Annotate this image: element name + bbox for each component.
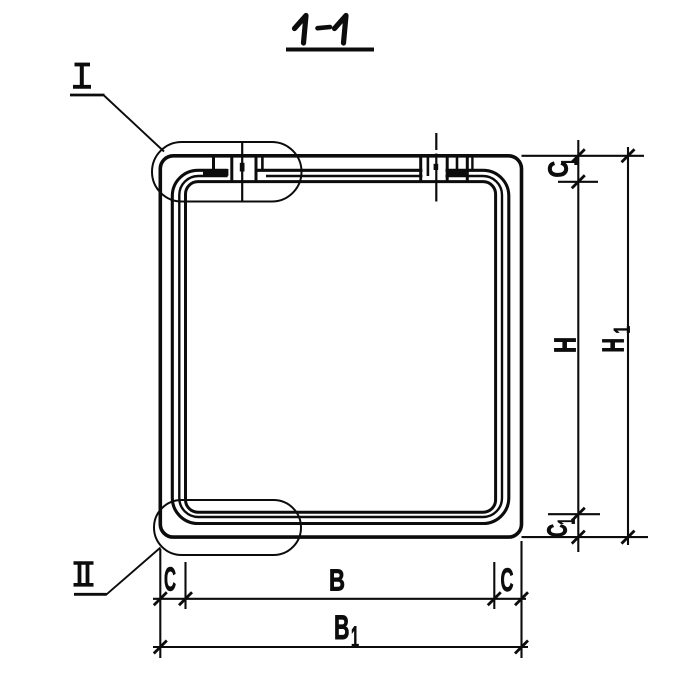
svg-text:C: C — [501, 562, 514, 598]
svg-text:1: 1 — [610, 326, 635, 334]
svg-text:1: 1 — [351, 620, 359, 655]
svg-text:C: C — [164, 561, 176, 598]
svg-text:H: H — [548, 337, 583, 353]
svg-text:B: B — [334, 609, 350, 647]
svg-text:B: B — [329, 563, 345, 598]
svg-text:C: C — [542, 524, 573, 537]
svg-text:H: H — [596, 338, 631, 353]
svg-text:1: 1 — [557, 159, 582, 166]
svg-text:1: 1 — [554, 519, 581, 525]
